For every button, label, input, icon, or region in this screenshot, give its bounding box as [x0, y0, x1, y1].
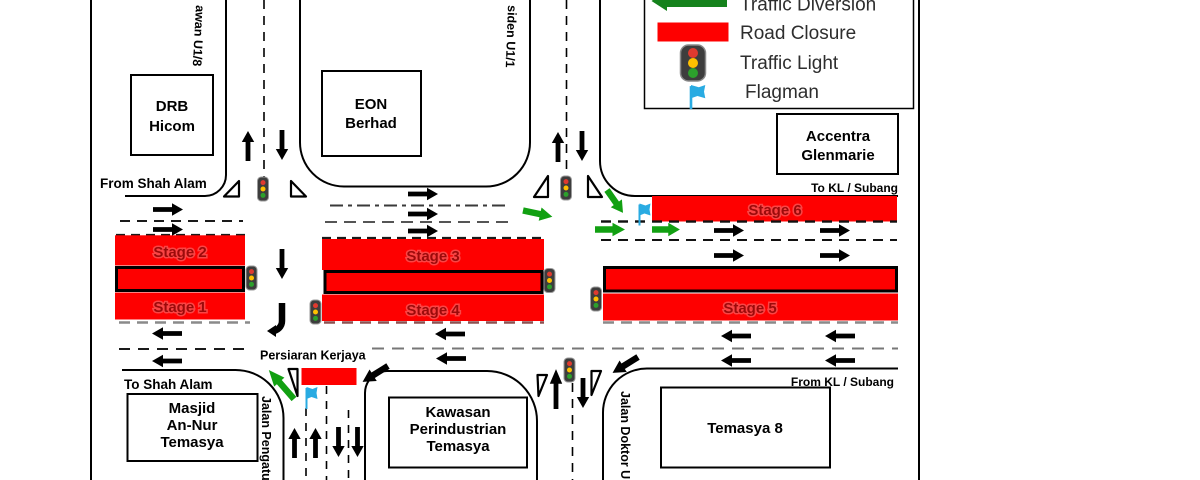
svg-text:From KL / Subang: From KL / Subang: [791, 375, 894, 389]
svg-text:Stage 3: Stage 3: [406, 248, 459, 265]
svg-text:Temasya 8: Temasya 8: [707, 420, 783, 437]
svg-text:Masjid: Masjid: [169, 400, 216, 417]
svg-text:Temasya: Temasya: [160, 434, 224, 451]
svg-text:Traffic Diversion: Traffic Diversion: [740, 0, 876, 16]
svg-text:Persiaran Kerjaya: Persiaran Kerjaya: [260, 349, 367, 363]
svg-text:Stage 2: Stage 2: [153, 244, 206, 261]
svg-text:siden U1/1: siden U1/1: [503, 5, 519, 68]
svg-text:Stage 1: Stage 1: [153, 299, 206, 316]
svg-text:To KL / Subang: To KL / Subang: [811, 181, 898, 195]
svg-text:Stage 5: Stage 5: [723, 300, 776, 317]
svg-text:From Shah Alam: From Shah Alam: [100, 176, 207, 191]
svg-text:DRB: DRB: [156, 98, 189, 115]
svg-text:To Shah Alam: To Shah Alam: [124, 377, 213, 392]
svg-text:Kawasan: Kawasan: [425, 404, 490, 421]
svg-text:Accentra: Accentra: [806, 128, 871, 145]
svg-text:EON: EON: [355, 96, 388, 113]
svg-text:Stage 6: Stage 6: [748, 202, 801, 219]
svg-text:An-Nur: An-Nur: [167, 417, 218, 434]
svg-text:Hicom: Hicom: [149, 118, 195, 135]
svg-text:Jalan Pengatu: Jalan Pengatu: [259, 396, 273, 480]
svg-text:Glenmarie: Glenmarie: [801, 147, 874, 164]
svg-text:Berhad: Berhad: [345, 115, 397, 132]
svg-text:Temasya: Temasya: [426, 438, 490, 455]
svg-text:Traffic Light: Traffic Light: [740, 53, 839, 74]
svg-text:Flagman: Flagman: [745, 82, 819, 103]
svg-text:Jalan Doktor U: Jalan Doktor U: [618, 391, 632, 479]
svg-text:Stage 4: Stage 4: [406, 302, 460, 319]
svg-text:Road Closure: Road Closure: [740, 23, 856, 44]
svg-text:Perindustrian: Perindustrian: [410, 421, 507, 438]
